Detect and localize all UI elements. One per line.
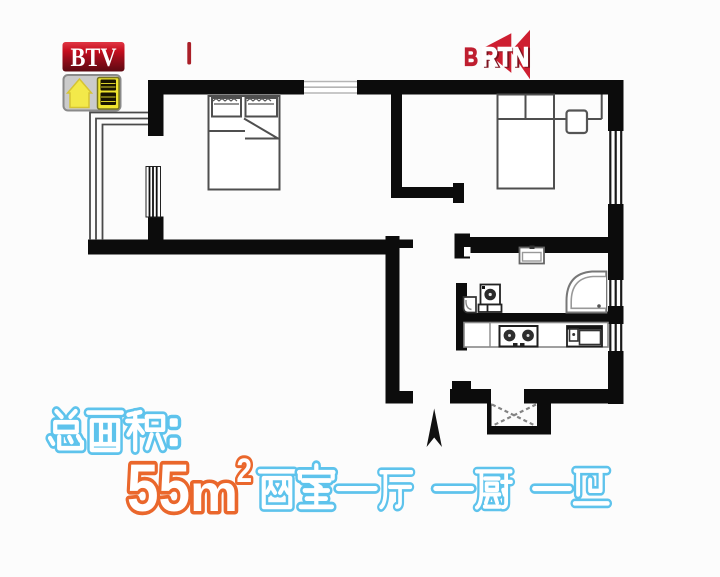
svg-text:RTN: RTN [481, 42, 529, 72]
svg-text:BTV: BTV [71, 43, 117, 72]
svg-text:55: 55 [127, 451, 190, 526]
svg-text:B: B [464, 44, 478, 72]
svg-text:2: 2 [237, 452, 253, 490]
svg-text:m: m [190, 465, 238, 523]
